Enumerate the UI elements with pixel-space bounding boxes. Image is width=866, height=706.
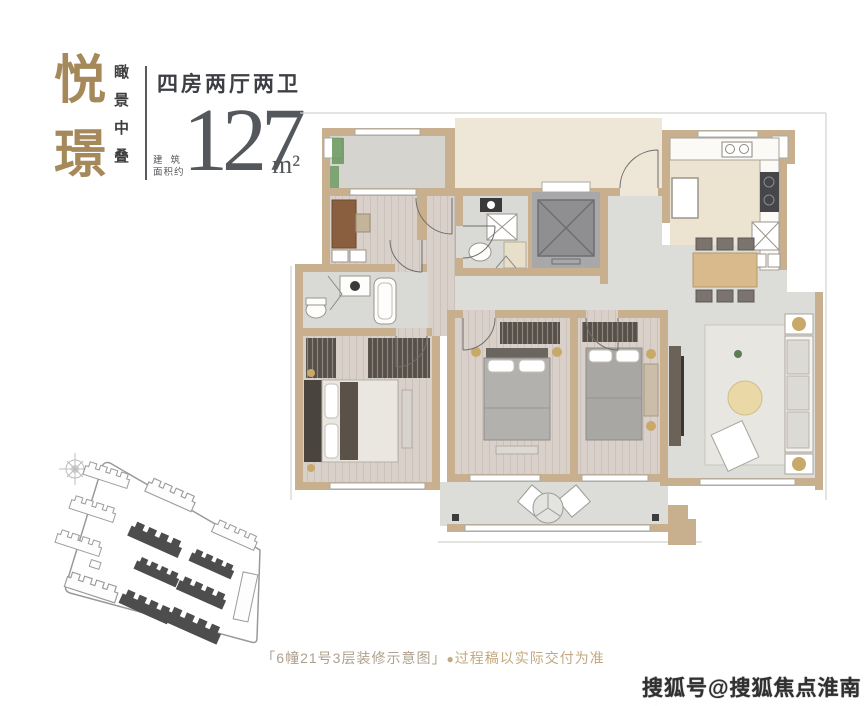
elevator-shaft <box>532 192 600 268</box>
nightstand <box>552 347 562 357</box>
pillow <box>616 350 639 362</box>
brand-title: 悦 璟 <box>50 56 110 182</box>
balcony-rail-window <box>465 525 650 531</box>
pouf <box>728 381 762 415</box>
plant-small <box>734 350 742 358</box>
sofa-cushion <box>787 412 809 448</box>
brand-tagline: 瞰景中叠 <box>110 64 130 186</box>
exterior-step <box>668 505 696 545</box>
caption-disclaimer: 过程稿以实际交付为准 <box>455 650 605 666</box>
planter <box>452 514 459 521</box>
pillow <box>589 350 612 362</box>
dining-table <box>693 253 757 287</box>
master-window <box>330 483 425 489</box>
header-divider <box>145 66 147 180</box>
desk <box>332 200 356 248</box>
lamp <box>307 464 315 472</box>
sink-unit <box>722 142 752 157</box>
living-window <box>700 479 795 485</box>
plant <box>332 138 344 164</box>
brand-title-char-2: 璟 <box>50 130 110 182</box>
bedroom2-slider <box>470 475 540 481</box>
bed-headboard <box>304 380 322 462</box>
flex-room-floor <box>330 136 445 196</box>
pillow <box>488 360 514 372</box>
caption-bullet: ● <box>446 652 454 666</box>
caption: 「6幢21号3层装修示意图」●过程稿以实际交付为准 <box>0 648 866 668</box>
sink <box>487 201 495 209</box>
stove <box>760 172 779 212</box>
bed-throw <box>340 382 358 460</box>
bath-cabinet <box>504 242 526 268</box>
pillow <box>519 360 545 372</box>
plant-gold <box>792 317 806 331</box>
watermark-text: 搜狐号@搜狐焦点淮南站 <box>642 672 866 706</box>
page: 悦 璟 瞰景中叠 四房两厅两卫 建筑 面积约 127 m² <box>0 0 866 706</box>
floorplan-drawing <box>290 108 830 548</box>
pillow <box>325 384 338 418</box>
toilet-tank <box>306 298 326 305</box>
dining-area <box>693 238 757 302</box>
cabinet <box>350 250 366 262</box>
dresser <box>644 364 658 416</box>
tv-screen <box>681 356 684 436</box>
plant-gold <box>792 457 806 471</box>
caption-plan-label: 「6幢21号3层装修示意图」 <box>261 650 446 666</box>
brand-title-char-1: 悦 <box>50 56 110 108</box>
bench <box>496 446 538 454</box>
bed-bench <box>402 390 412 448</box>
sink <box>350 281 360 291</box>
bathtub <box>374 278 396 324</box>
bedroom3-slider <box>582 475 648 481</box>
shaft-vent <box>542 182 590 192</box>
lamp <box>646 349 656 359</box>
desk-chair <box>356 214 370 232</box>
cabinet <box>332 250 348 262</box>
cabinet <box>768 254 780 267</box>
sofa-cushion <box>787 376 809 410</box>
pillow <box>325 424 338 458</box>
tv-console <box>669 346 681 446</box>
interior-window <box>350 189 416 195</box>
bed-headboard <box>486 348 548 358</box>
sofa-cushion <box>787 340 809 374</box>
wardrobe <box>368 338 430 378</box>
plant <box>330 166 339 188</box>
planter <box>652 514 659 521</box>
kitchen-window <box>698 131 758 137</box>
fridge <box>672 178 698 218</box>
flex-room-window <box>355 129 420 135</box>
wardrobe <box>500 322 560 344</box>
wardrobe <box>582 322 638 342</box>
corridor-floor <box>455 118 662 192</box>
lamp <box>307 369 315 377</box>
siteplan-drawing <box>40 445 290 667</box>
lamp <box>646 421 656 431</box>
